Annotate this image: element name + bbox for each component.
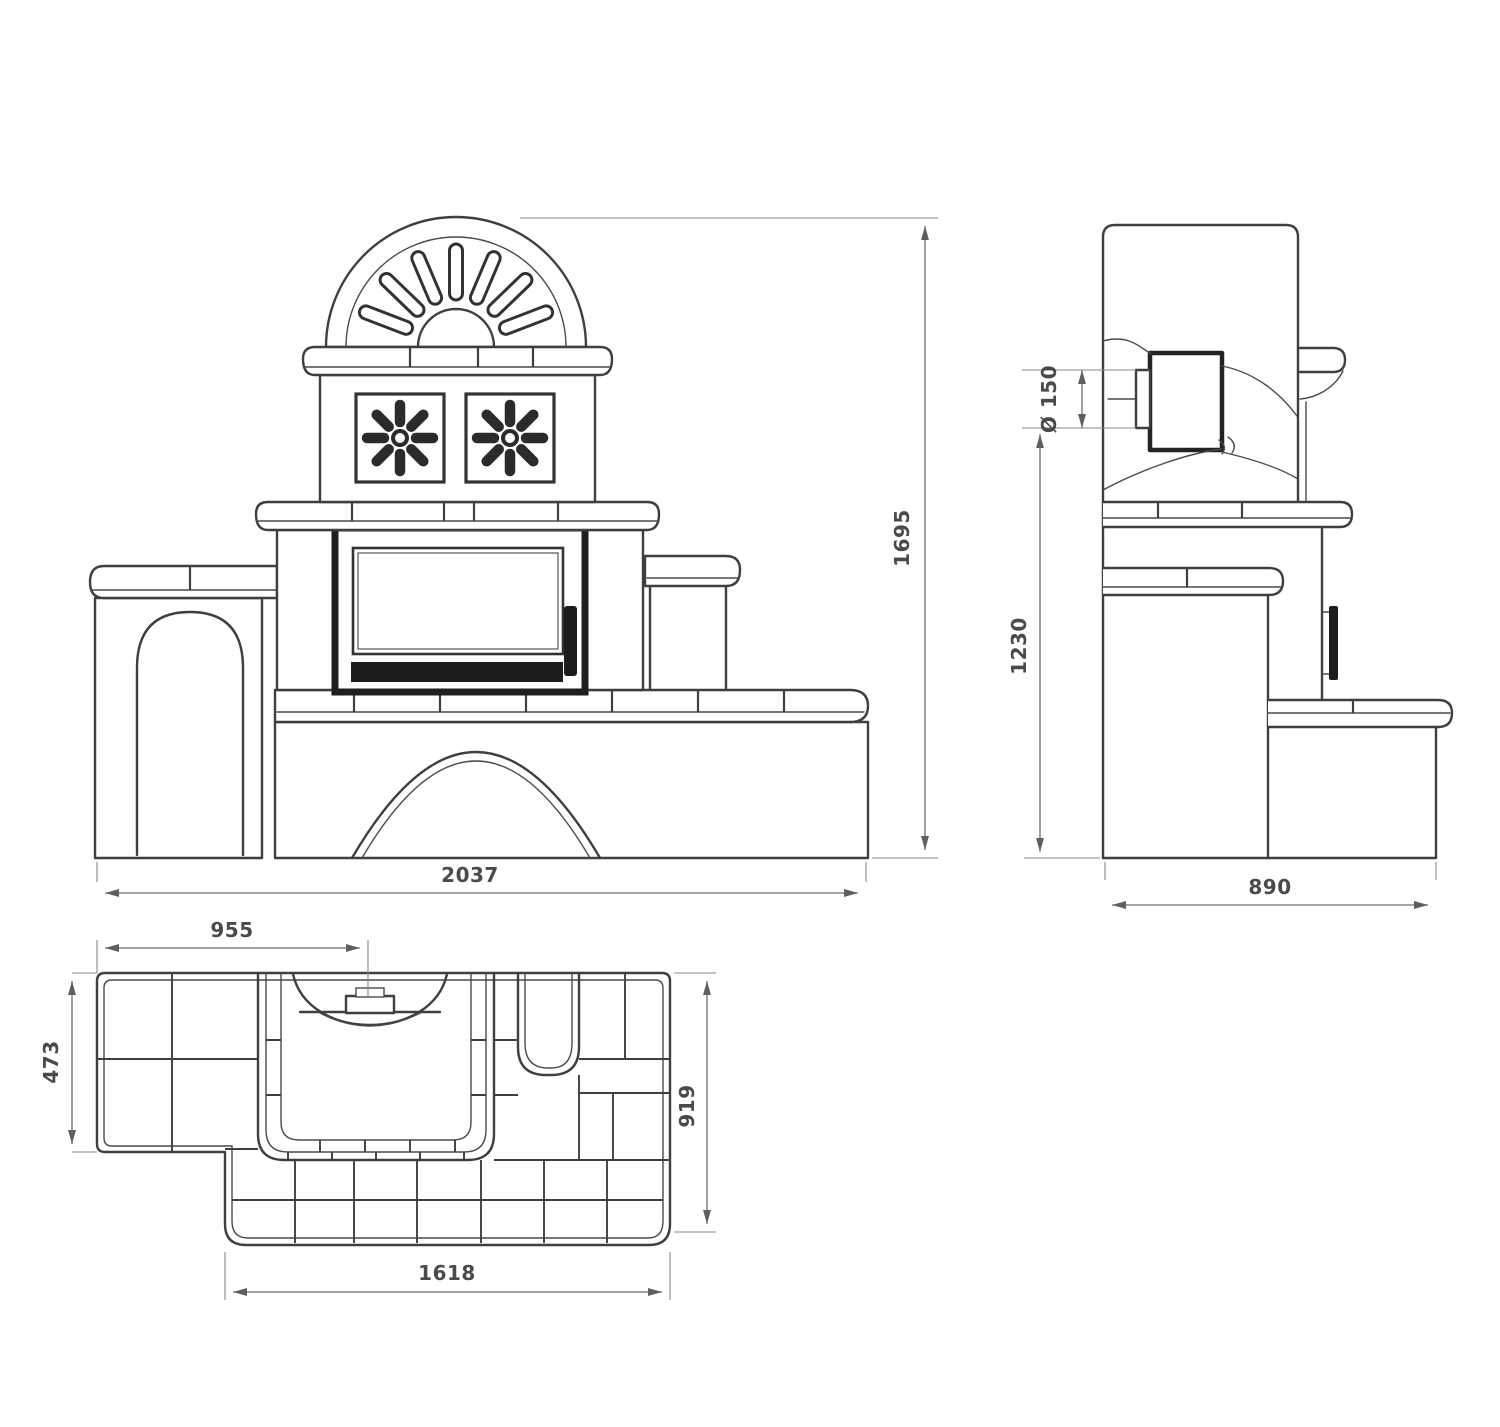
plan-bench-depth-label: 473 <box>39 1040 63 1083</box>
dim-side-height: 1230 <box>1007 434 1100 858</box>
plan-base-width-label: 1618 <box>418 1261 476 1285</box>
base-block <box>275 722 868 858</box>
plan-view: 955 473 919 1618 <box>39 918 716 1300</box>
sunburst-arch <box>326 217 586 347</box>
dim-front-width: 2037 <box>97 862 866 893</box>
plan-depth-label: 919 <box>675 1084 699 1127</box>
flue-diameter-label: Ø 150 <box>1037 365 1061 433</box>
door-handle <box>564 606 577 676</box>
rosette-tile <box>466 394 554 482</box>
technical-drawing: 1695 2037 <box>0 0 1500 1427</box>
rosette-panel <box>320 375 595 502</box>
firebox-glass <box>353 548 563 654</box>
side-cornice <box>1103 502 1352 527</box>
front-view: 1695 2037 <box>90 217 938 893</box>
side-handle <box>1322 606 1338 680</box>
cornice-upper <box>303 347 612 375</box>
left-bench-top <box>90 566 277 598</box>
side-view: Ø 150 1230 890 <box>1007 225 1452 905</box>
front-width-label: 2037 <box>441 863 499 887</box>
fire-chamber <box>277 528 643 692</box>
side-height-label: 1230 <box>1007 617 1031 675</box>
dim-plan-bench-depth: 473 <box>39 973 97 1152</box>
plan-axis-label: 955 <box>210 918 253 942</box>
cornice-lower <box>256 502 659 530</box>
side-depth-label: 890 <box>1248 875 1291 899</box>
top-shelf <box>1298 348 1345 502</box>
ash-lip <box>351 662 563 682</box>
left-panel <box>95 598 262 858</box>
dim-plan-depth: 919 <box>674 973 716 1232</box>
dim-side-depth: 890 <box>1105 862 1436 905</box>
front-height-label: 1695 <box>890 509 914 567</box>
rear-bench-top <box>1103 568 1283 595</box>
dim-plan-base-width: 1618 <box>225 1252 670 1300</box>
rosette-tile <box>356 394 444 482</box>
step-bench <box>1268 700 1452 858</box>
right-ledge <box>645 556 740 690</box>
